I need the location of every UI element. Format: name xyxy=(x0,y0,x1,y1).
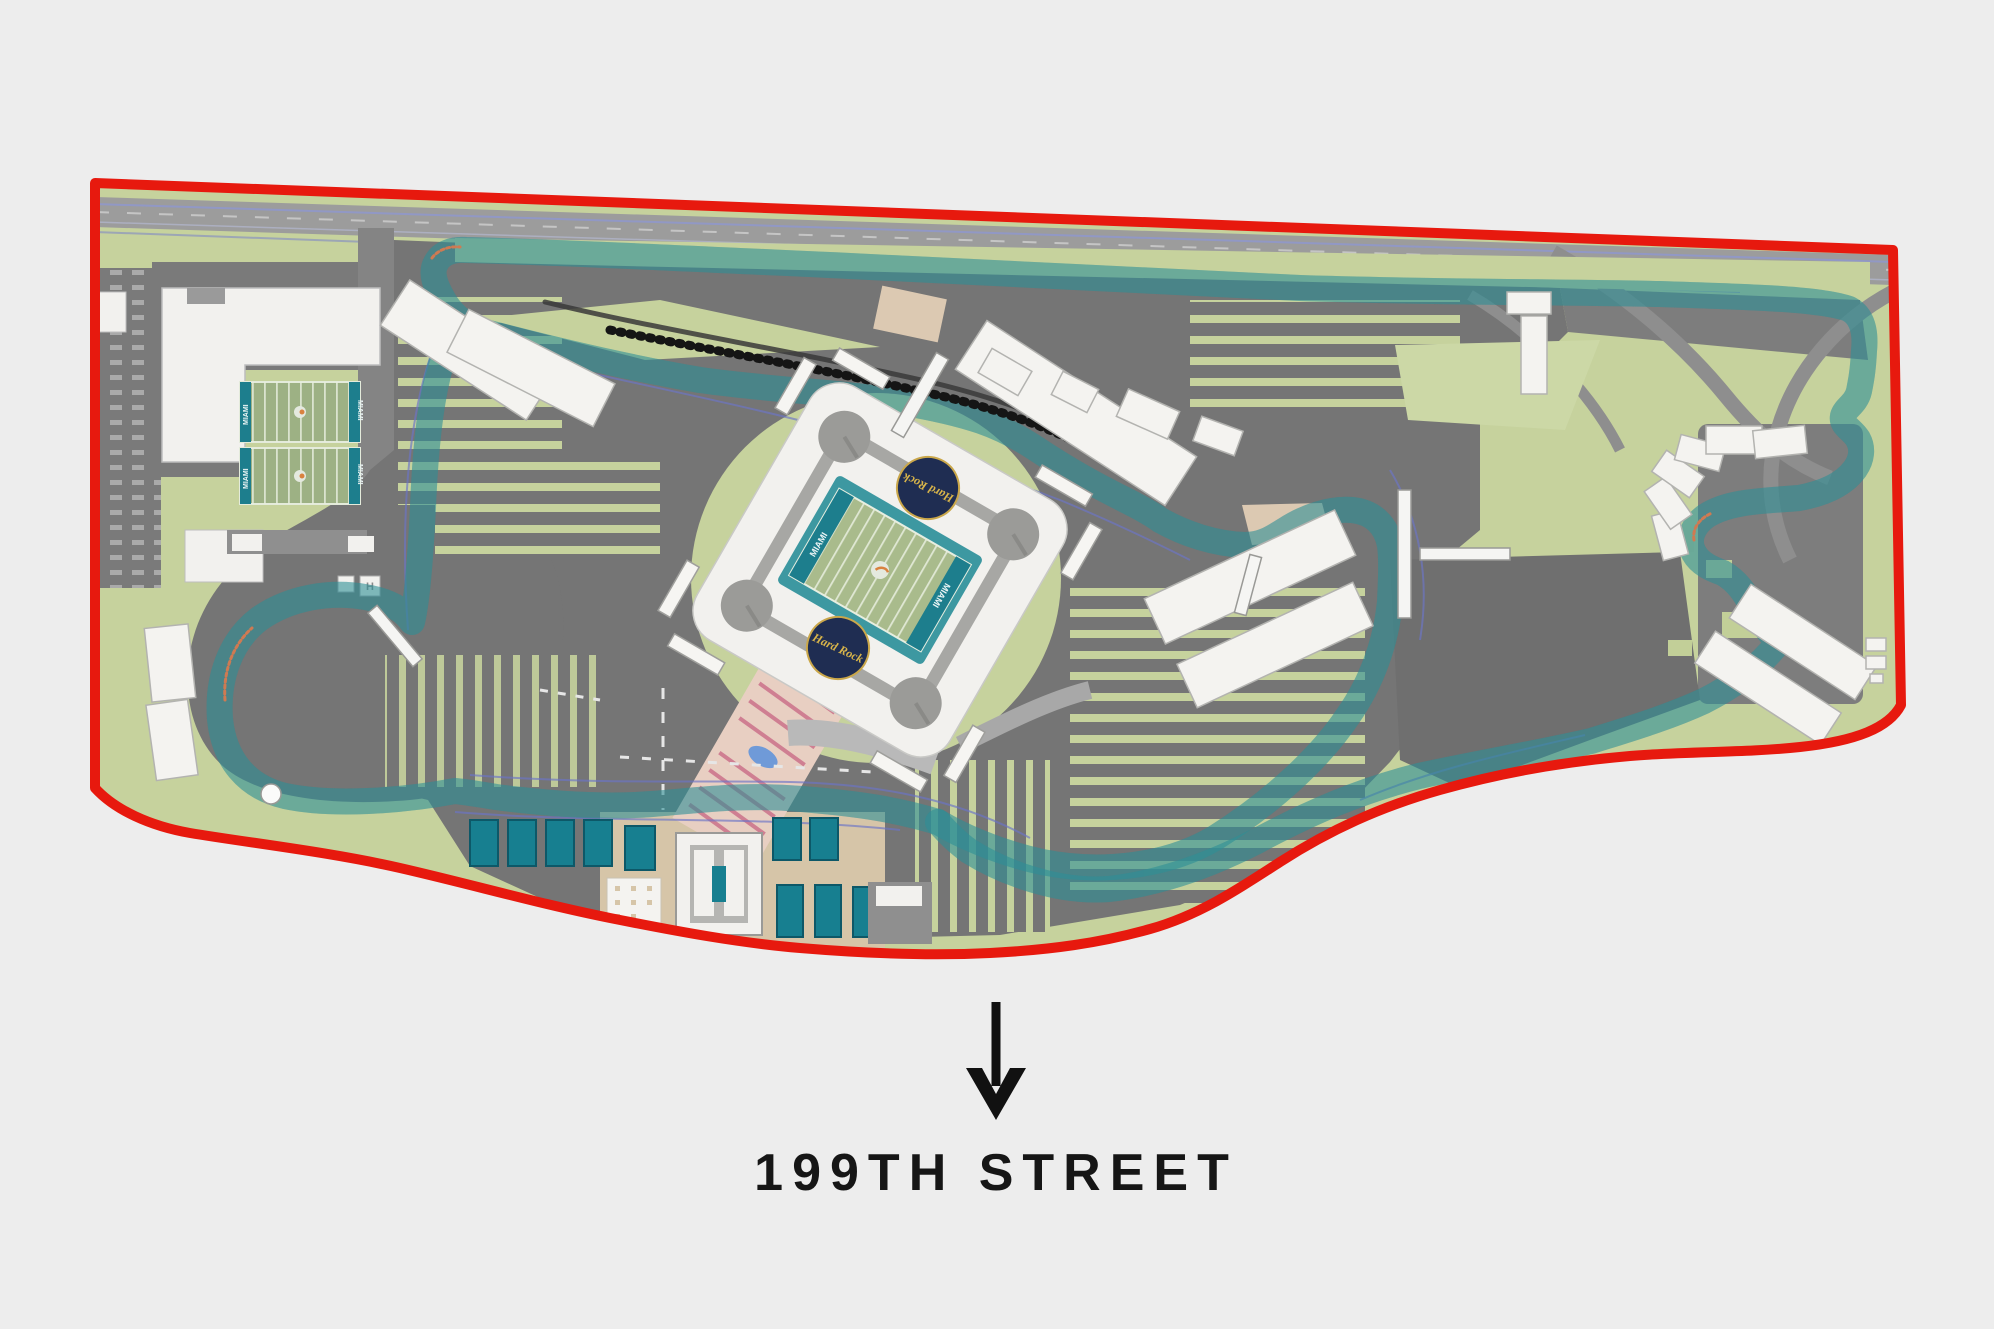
endzone-label: MIAMI xyxy=(356,400,363,421)
circuit-site-map: MIAMI MIAMI MIAMI MIAMI H xyxy=(0,0,1994,1329)
endzone-label: MIAMI xyxy=(243,468,250,489)
street-arrow xyxy=(966,1002,1026,1120)
endzone-label: MIAMI xyxy=(243,404,250,425)
hotel-complex xyxy=(676,833,762,935)
practice-field-1: MIAMI MIAMI xyxy=(240,382,363,442)
practice-field-2: MIAMI MIAMI xyxy=(240,448,363,504)
site-map-canvas: MIAMI MIAMI MIAMI MIAMI H xyxy=(0,0,1994,1329)
street-label: 199TH STREET xyxy=(754,1144,1238,1202)
endzone-label: MIAMI xyxy=(356,464,363,485)
